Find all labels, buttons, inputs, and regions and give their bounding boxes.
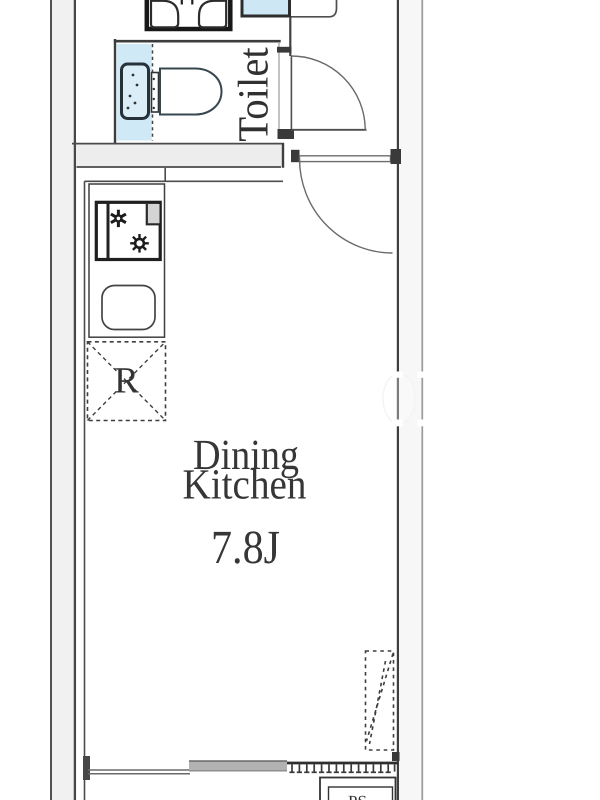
svg-text:PS: PS bbox=[348, 792, 367, 800]
svg-text:Toilet: Toilet bbox=[231, 47, 278, 142]
svg-text:7.8J: 7.8J bbox=[211, 522, 280, 574]
svg-text:R: R bbox=[114, 361, 139, 402]
svg-text:Kitchen: Kitchen bbox=[183, 462, 307, 509]
